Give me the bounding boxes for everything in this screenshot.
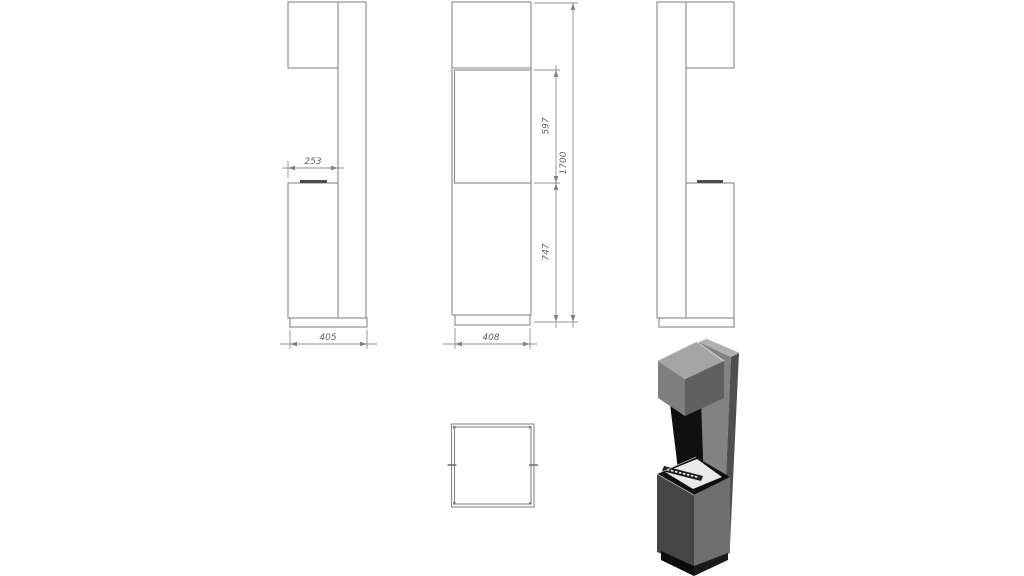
right-view-base-cabinet — [686, 183, 734, 318]
right-view-top-cabinet — [686, 2, 734, 68]
right-side-view — [657, 2, 734, 327]
left-view-top-cabinet — [288, 2, 338, 68]
front-view: 408 597 747 1700 — [443, 2, 578, 349]
top-view-corner-mark — [453, 502, 456, 505]
top-view-inner — [455, 427, 532, 504]
front-view-firebox-panel — [455, 70, 532, 183]
right-view-burner-lip — [697, 180, 723, 183]
left-view-base-cabinet — [288, 183, 338, 318]
front-view-plinth — [455, 315, 530, 325]
technical-drawing-canvas: 253 405 408 597 747 — [0, 0, 1024, 576]
dim-408-label: 408 — [482, 333, 499, 343]
dim-1700-label: 1700 — [559, 151, 569, 174]
dim-597-label: 597 — [542, 117, 552, 134]
left-view-column — [338, 2, 366, 318]
right-view-column — [657, 2, 686, 318]
iso-3d-view — [657, 339, 739, 576]
top-view — [448, 424, 539, 507]
dim-747-label: 747 — [542, 243, 552, 260]
dimension-253: 253 — [282, 157, 344, 178]
dimension-405: 405 — [280, 330, 377, 349]
dim-253-label: 253 — [304, 157, 321, 167]
dimension-597: 597 — [534, 65, 560, 183]
left-side-view: 253 405 — [280, 2, 377, 349]
right-view-plinth — [659, 318, 734, 327]
left-view-plinth — [290, 318, 367, 327]
left-view-burner-lip — [300, 180, 327, 183]
top-view-corner-mark — [453, 426, 456, 429]
top-view-corner-mark — [529, 502, 532, 505]
dimension-747: 747 — [534, 183, 578, 328]
dimension-408: 408 — [443, 328, 537, 349]
dim-405-label: 405 — [319, 333, 336, 343]
top-view-corner-mark — [529, 426, 532, 429]
